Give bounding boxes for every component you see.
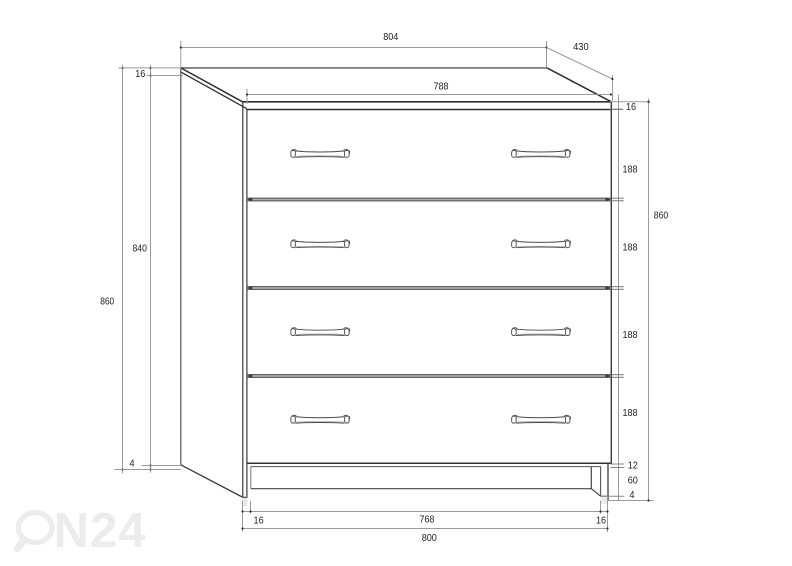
svg-text:840: 840 [132,243,147,254]
svg-text:188: 188 [622,408,637,419]
svg-text:188: 188 [622,330,637,341]
svg-text:N24: N24 [54,504,147,558]
svg-text:16: 16 [626,102,636,113]
svg-text:860: 860 [100,296,114,307]
svg-text:188: 188 [622,242,637,253]
svg-text:860: 860 [654,211,669,222]
svg-text:188: 188 [622,165,637,176]
svg-text:12: 12 [628,460,638,471]
svg-text:768: 768 [419,515,434,526]
svg-text:800: 800 [422,533,437,544]
svg-text:16: 16 [596,516,606,527]
svg-text:16: 16 [135,69,145,80]
svg-text:60: 60 [628,476,638,487]
svg-text:430: 430 [573,42,589,53]
svg-text:4: 4 [630,490,635,501]
svg-text:804: 804 [383,32,398,43]
svg-text:16: 16 [254,516,264,527]
svg-text:788: 788 [433,82,448,93]
svg-text:4: 4 [130,458,135,469]
